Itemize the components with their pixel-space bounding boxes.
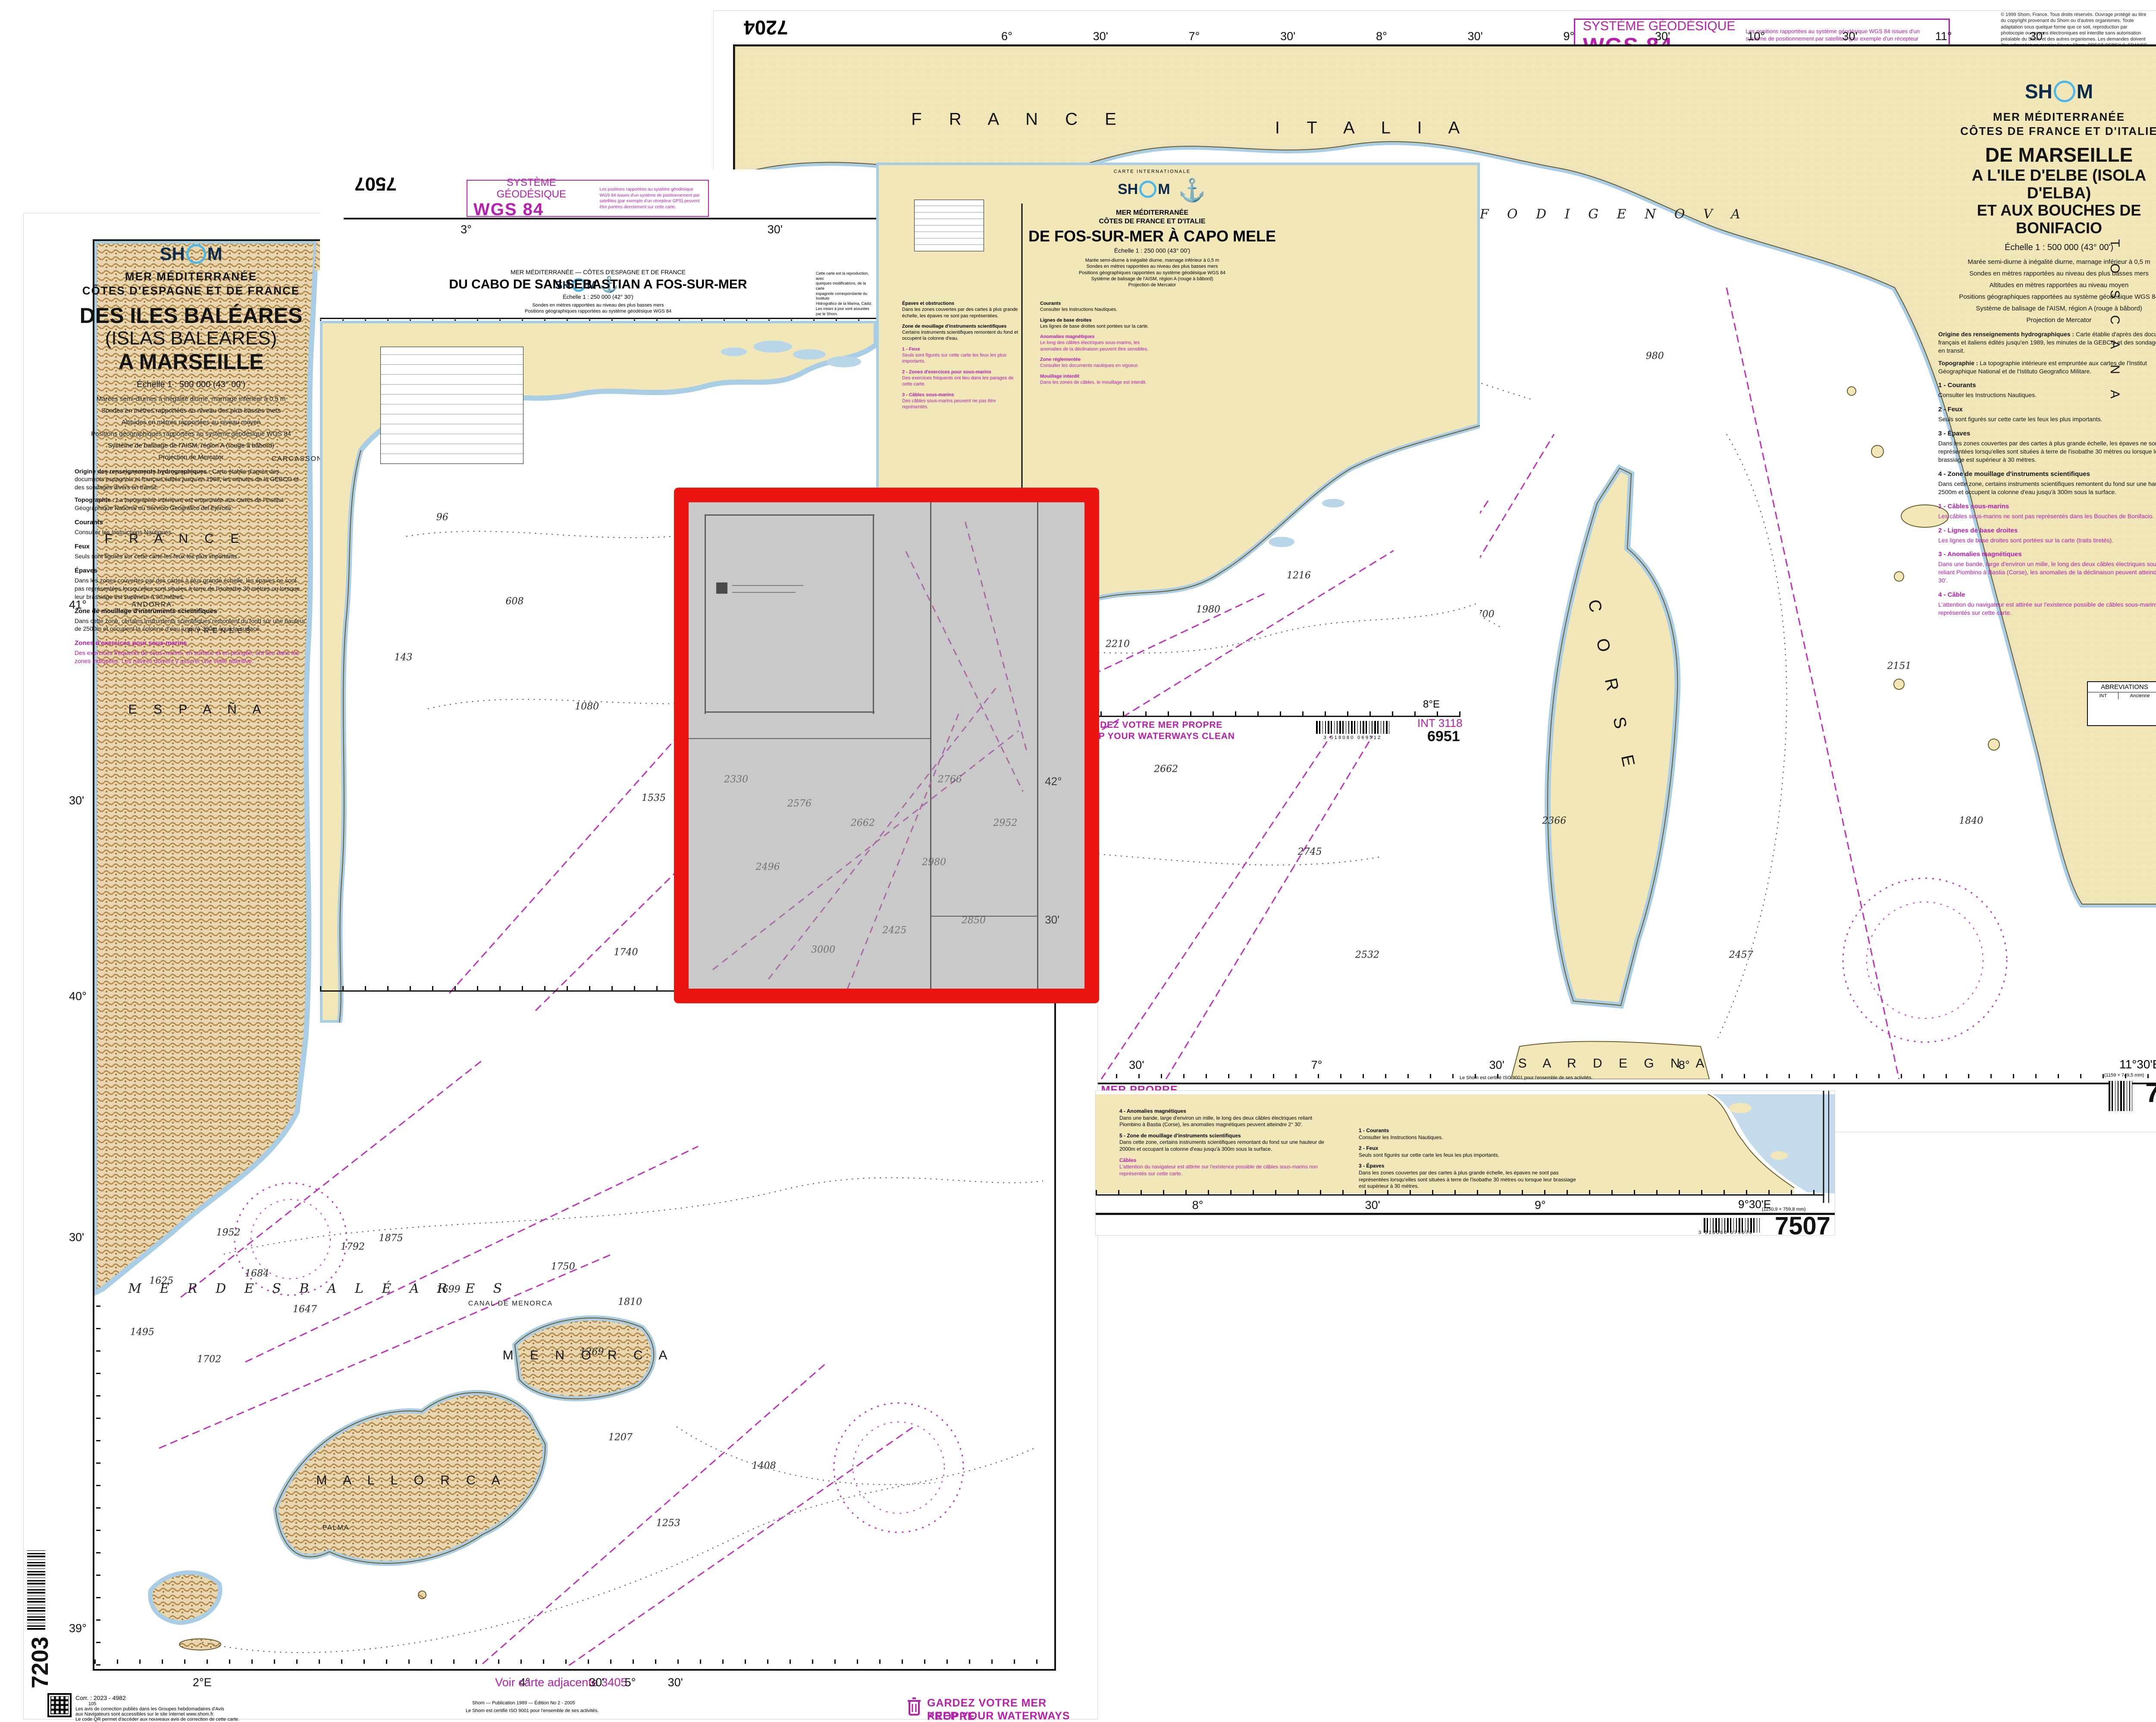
chart-title-line2: (ISLAS BALEARES) [75, 328, 307, 350]
sea-region: MER MÉDITERRANÉE [1938, 110, 2156, 124]
fineprint-block: Cette carte est la reproduction, avecque… [816, 271, 874, 316]
outer-border-line [1096, 1213, 1835, 1215]
coast-region: CÔTES DE FRANCE ET D'ITALIE [1938, 124, 2156, 138]
chart-notes: Marées semi-diurnes à inégalité diurne, … [75, 393, 307, 463]
chart-scale: Échelle 1 : 500 000 (43° 00') [1938, 243, 2156, 253]
highlight-rectangle[interactable]: 42° 30' 23302576249626622980285024252766… [674, 488, 1099, 1003]
chart-title-line3: ET AUX BOUCHES DE BONIFACIO [1938, 202, 2156, 237]
magenta-notes: 1 - Câbles sous-marinsLes câbles sous-ma… [1938, 501, 2156, 617]
strip-notes-a: 4 - Anomalies magnétiquesDans une bande,… [1119, 1108, 1335, 1181]
corner-longitude-label: 11°30'E [2119, 1058, 2156, 1071]
chart-paragraphs: Origine des renseignements hydrographiqu… [1938, 330, 2156, 375]
keep-sea-clean-en: KEEP YOUR WATERWAYS CLEAN [927, 1709, 1097, 1722]
iso-certification-line: Le Shom est certifié ISO 9001 pour l'ens… [1460, 1075, 1592, 1081]
chart-notes: Marée semi-diurne à inégalité diurne, ma… [1938, 256, 2156, 326]
coast-region: CÔTES D'ESPAGNE ET DE FRANCE [75, 284, 307, 298]
grayed-chart-region: 42° 30' 23302576249626622980285024252766… [689, 502, 1084, 989]
overlay-soundings: 2330257624962662298028502425276629523000 [689, 502, 1084, 989]
publication-line: Shom — Publication 1989 — Édition No 2 -… [472, 1700, 575, 1706]
map-border-bottom [1096, 1194, 1824, 1196]
chart-sheet-7507-corner[interactable]: 7507 SYSTÈME GÉODÉSIQUE WGS 84 Les posit… [320, 169, 876, 266]
border-line [344, 218, 876, 219]
chart-number-6951: 6951 [1427, 728, 1460, 745]
chart-number-7507: 7507 [1775, 1212, 1830, 1240]
barcode-6951 [1316, 721, 1389, 734]
wgs84-stamp: SYSTÈME GÉODÉSIQUE WGS 84 Les positions … [467, 180, 709, 217]
chart-scale: Échelle 1 : 500 000 (43° 00') [75, 380, 307, 390]
chart-title-line3: A MARSEILLE [75, 350, 307, 374]
qr-code [47, 1693, 72, 1717]
shom-logo: SHM [2025, 80, 2093, 103]
chart-title-line2: A L'ILE D'ELBE (ISOLA D'ELBA) [1938, 166, 2156, 202]
barcode-digits: 3 518080 075070 [1698, 1230, 1753, 1236]
stamp-note: Les positions rapportées au système géod… [600, 187, 702, 210]
sea-region: MER MÉDITERRANÉE [75, 269, 307, 284]
chart-title: DU CABO DE SAN SEBASTIAN A FOS-SUR-MER [320, 277, 876, 292]
chart-subnotes: Sondes en mètres rapportées au niveau de… [441, 302, 755, 315]
chart-title-line1: DE MARSEILLE [1938, 144, 2156, 166]
section-notes: CourantsConsulter les Instructions Nauti… [75, 517, 307, 633]
corner-longitude-label: 8°E [1423, 698, 1440, 711]
submarine-exercise-note: Zones d'exercices pour sous-marinsDes ex… [75, 637, 307, 665]
barcode-7203-vertical [27, 1550, 45, 1630]
chart-composite-canvas: 7204 5°E © 1999 Shom, France. Tous droit… [0, 0, 2156, 1722]
chart-number-7507-top-rotated: 7507 [354, 173, 397, 194]
chart-number-7203-vertical: 7203 [27, 1637, 53, 1688]
barcode-digits: 3 518080 069512 [1316, 735, 1389, 741]
correction-number: Corr. : 2023 - 4982 [75, 1694, 126, 1702]
abbreviations-box: ABREVIATIONS INT Ancienne [2087, 681, 2156, 726]
chart-sheet-7507-strip[interactable]: 4 - Anomalies magnétiquesDans une bande,… [1096, 1091, 1835, 1235]
iso-certification-line: Le Shom est certifié ISO 9001 pour l'ens… [466, 1708, 599, 1714]
map-border-top [320, 318, 876, 319]
chart-paragraphs: Origine des renseignements hydrographiqu… [75, 467, 307, 512]
keep-sea-clean-en: KEEP YOUR WATERWAYS CLEAN [1079, 731, 1235, 742]
correction-note3: Le code QR permet d'accéder aux nouveaux… [75, 1716, 239, 1722]
copyright-block: © 1999 Shom, France. Tous droits réservé… [2001, 12, 2156, 49]
chart-number-7204: 7204 [2145, 1077, 2156, 1108]
numbered-notes: 1 - CourantsConsulter les Instructions N… [1938, 379, 2156, 496]
title-block-7203: SHM MER MÉDITERRANÉE CÔTES D'ESPAGNE ET … [75, 244, 307, 670]
chart-title-line1: DES ILES BALÉARES [75, 304, 307, 328]
barcode-7204 [2109, 1081, 2132, 1111]
strip-notes-b: 1 - CourantsConsulter les Instructions N… [1359, 1127, 1583, 1194]
title-block-7204: SHM MER MÉDITERRANÉE CÔTES DE FRANCE ET … [1938, 80, 2156, 621]
keep-sea-clean-fr: GARDEZ VOTRE MER PROPRE [1079, 720, 1222, 731]
chart-scale: Échelle 1 : 250 000 (42° 30') [320, 294, 876, 300]
chart-number-7204-top-rotated: 7204 [744, 16, 788, 39]
shom-logo: SHM [160, 244, 222, 264]
chart-header: MER MÉDITERRANÉE — CÔTES D'ESPAGNE ET DE… [320, 269, 876, 276]
sheet-dimensions: (1159 × 749,5 mm) [2104, 1072, 2144, 1078]
